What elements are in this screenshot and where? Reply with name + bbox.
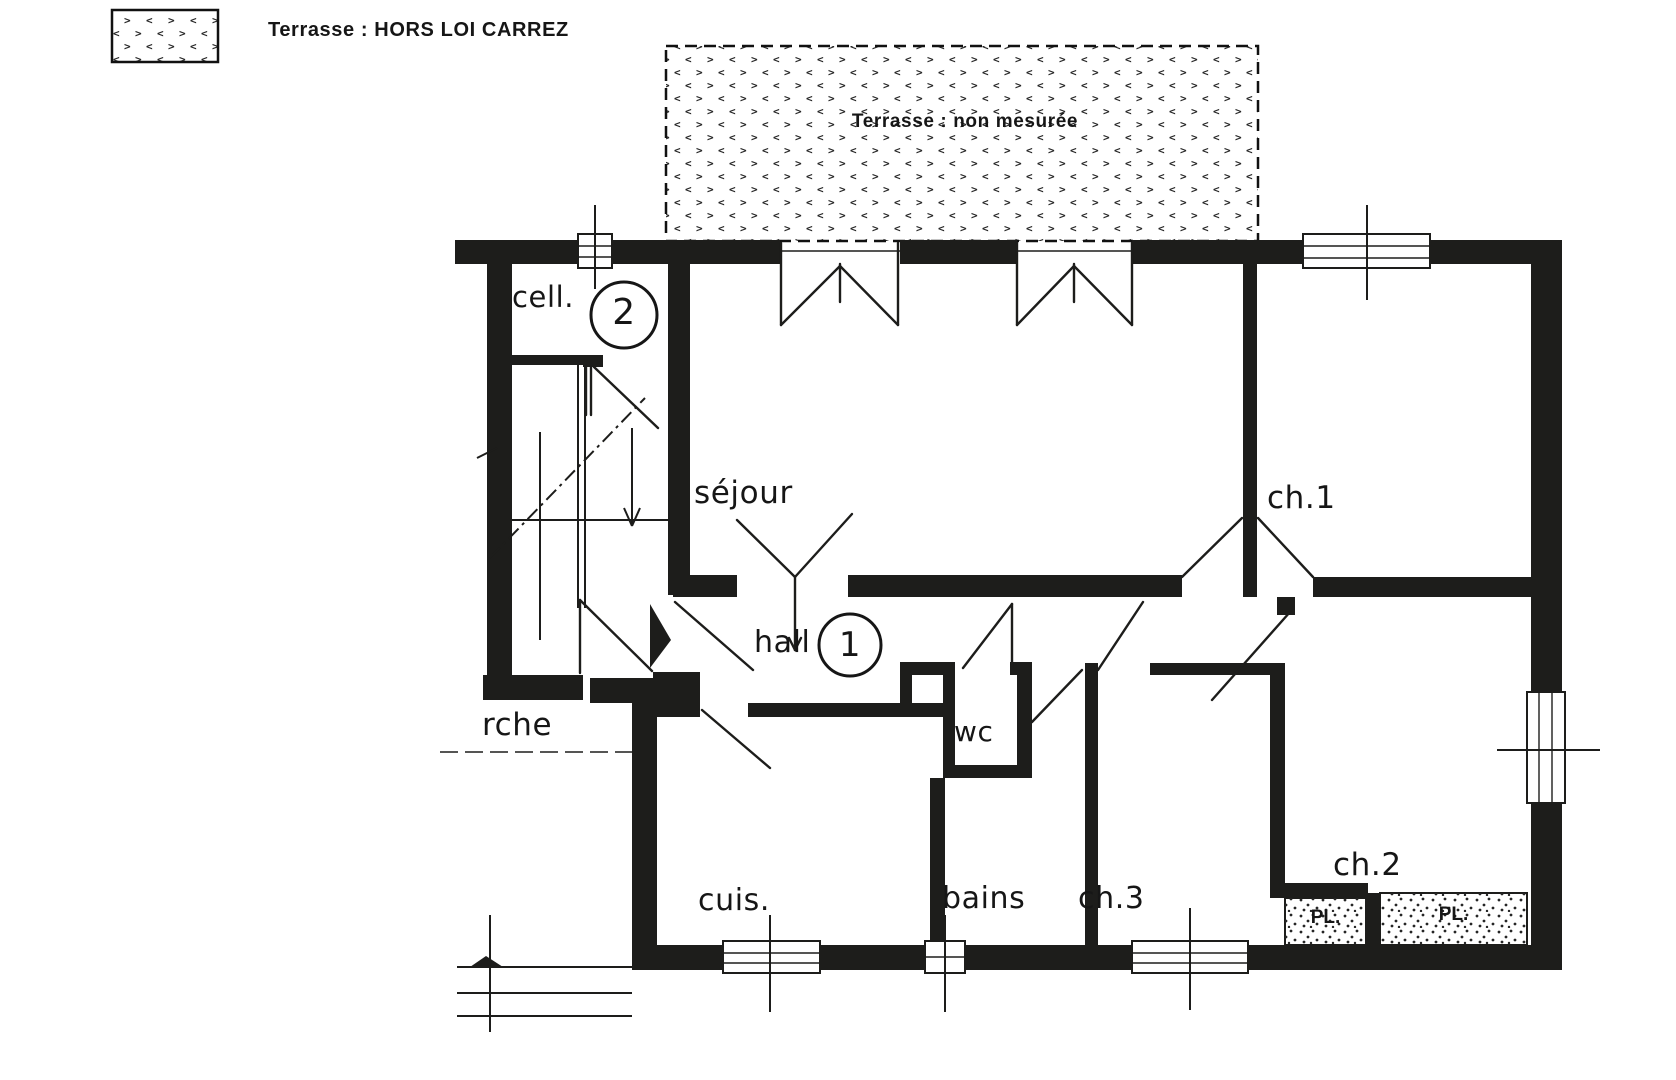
room-label-sejour: séjour <box>694 478 793 509</box>
french-door-1 <box>780 243 900 325</box>
door-wc <box>963 604 1012 668</box>
door-cellier <box>586 367 658 428</box>
room-label-hall: hall <box>754 628 810 658</box>
lot-number-1: 1 <box>819 628 881 662</box>
room-label-ch1: ch.1 <box>1267 483 1336 514</box>
floor-plan-page: > < < > <box>0 0 1676 1080</box>
door-ch1-leaf <box>1258 518 1313 577</box>
room-label-placard-1: PL. <box>1285 908 1366 927</box>
room-label-ch2: ch.2 <box>1333 850 1402 881</box>
room-label-ch3: ch.3 <box>1078 884 1145 914</box>
door-porch <box>580 600 652 673</box>
door-sejour-leaf <box>1182 518 1242 577</box>
terrace-label: Terrasse : non mesurée <box>820 112 1110 131</box>
door-cuisine-leaf <box>702 710 770 768</box>
room-label-cellier: cell. <box>512 283 574 312</box>
room-label-bains: bains <box>942 884 1025 914</box>
room-label-porche: rche <box>482 710 552 741</box>
door-ch3-leaf <box>1098 602 1143 670</box>
room-label-placard-2: PL. <box>1380 905 1527 924</box>
window-cellier <box>578 205 612 289</box>
legend-hatch-swatch <box>112 10 218 62</box>
window-right-wall <box>1497 692 1600 803</box>
exterior-steps <box>440 752 632 1032</box>
window-ch1 <box>1303 205 1430 300</box>
window-cuisine <box>723 915 820 1012</box>
door-bains-leaf <box>1032 670 1082 722</box>
french-door-2 <box>1017 243 1132 325</box>
door-entrance <box>650 602 753 670</box>
lot-number-2: 2 <box>591 295 657 331</box>
terrace-area <box>666 46 1258 241</box>
window-ch3 <box>1132 908 1248 1010</box>
room-label-cuisine: cuis. <box>698 886 770 916</box>
room-label-wc: wc <box>954 718 994 746</box>
legend-note: Terrasse : HORS LOI CARREZ <box>268 20 569 40</box>
interior-walls <box>512 264 1531 945</box>
